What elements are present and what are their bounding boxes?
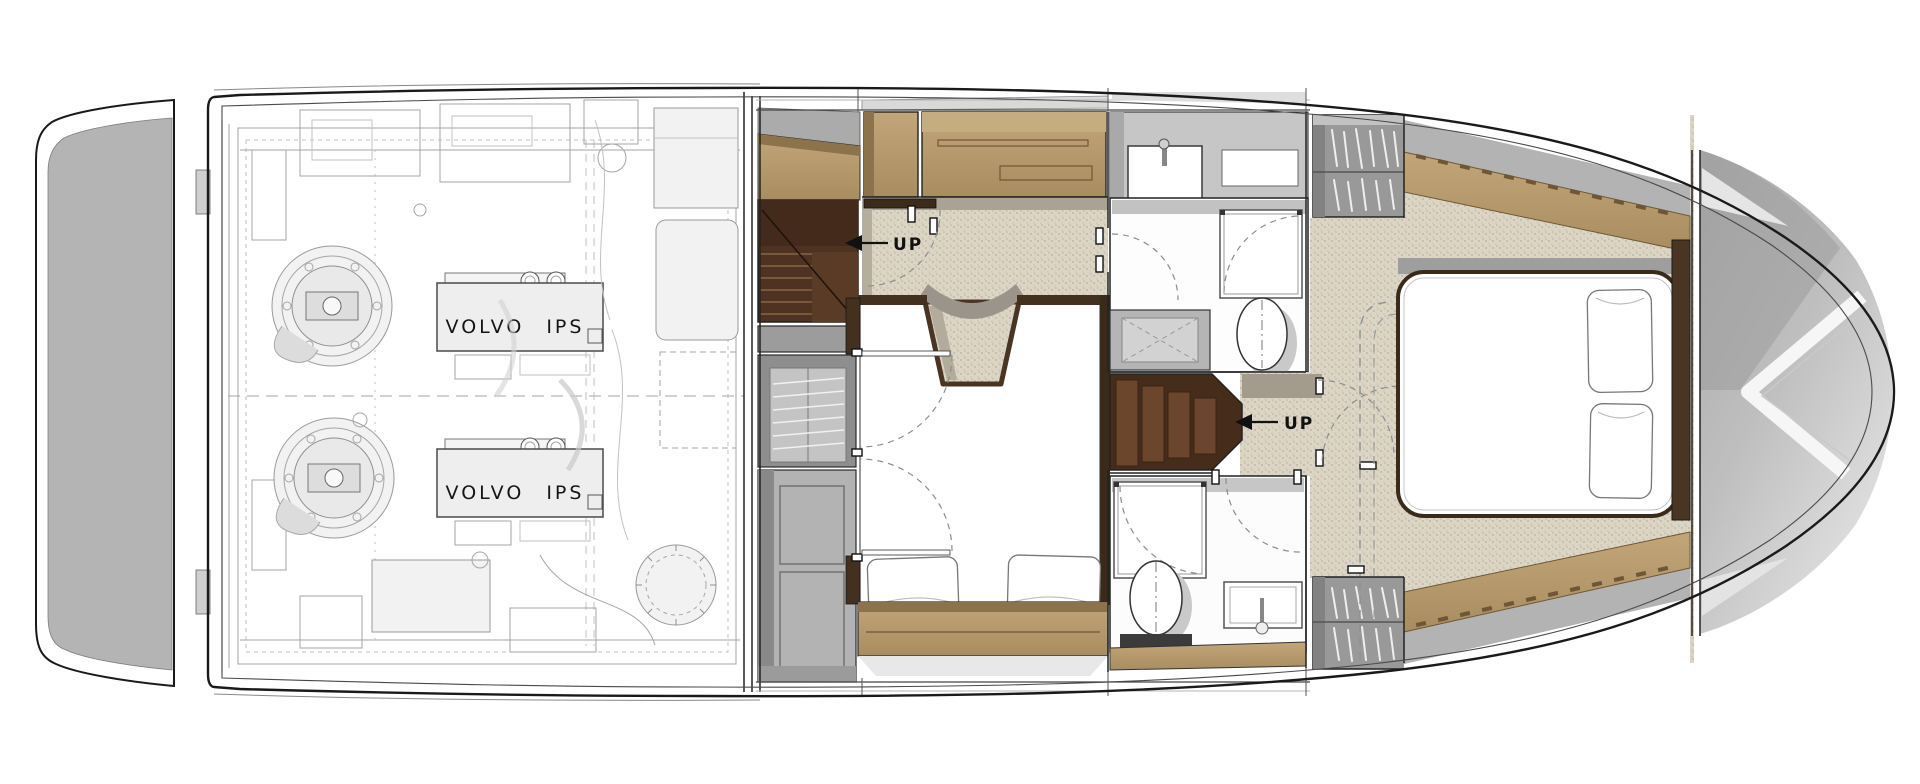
door-jamb [908, 206, 915, 222]
pillow [1589, 403, 1653, 498]
cabin-wall [846, 556, 860, 604]
door-jamb [1294, 470, 1301, 484]
faucet-icon [1260, 598, 1264, 624]
ips-pod-port [272, 246, 392, 366]
lower-bathroom [1110, 470, 1306, 670]
engine-room: VOLVO IPS VOLVO IPS [196, 98, 748, 690]
mid-cabin: UP [845, 96, 1110, 676]
corridor-shadow [1242, 374, 1322, 398]
stair-door-header [864, 199, 936, 208]
door-jamb [1096, 256, 1103, 272]
forward-staircase [1110, 374, 1242, 470]
bed-headboard [1672, 240, 1690, 520]
wardrobe-bottom [1313, 577, 1405, 669]
vanity-hatch [1222, 150, 1298, 186]
shower-icon [1220, 210, 1302, 298]
tall-cabinet [758, 470, 856, 682]
pillow [1587, 289, 1653, 392]
cabin-wall [858, 295, 927, 305]
entry-carpet [1310, 218, 1406, 578]
faucet-icon [1159, 139, 1169, 149]
door-jamb [1212, 470, 1219, 484]
door-jamb [1096, 228, 1103, 244]
floor-shadow [858, 656, 1108, 676]
yacht-lower-deck-floorplan: VOLVO IPS VOLVO IPS [0, 0, 1920, 784]
locker-shelf [758, 326, 856, 352]
door-jamb [930, 218, 937, 234]
shower-tray [1110, 310, 1210, 370]
engine-starboard-label: VOLVO IPS [446, 482, 585, 504]
mid-bathroom [1110, 112, 1308, 380]
ips-pod-starboard [274, 418, 394, 538]
aft-stair-column [752, 96, 860, 692]
bow-area [1692, 150, 1892, 636]
aft-staircase [758, 200, 858, 322]
floorplan-svg: VOLVO IPS VOLVO IPS [0, 0, 1920, 784]
cabin-wall [1017, 295, 1108, 305]
vanity-shadow [1110, 112, 1124, 198]
swim-platform [36, 100, 174, 686]
sink-icon [1224, 582, 1302, 634]
forward-stairs-up-label: UP [1284, 414, 1314, 434]
swim-platform-deck [48, 118, 172, 670]
cabin-wall [846, 298, 860, 354]
wardrobe-top [1313, 115, 1405, 217]
faucet-icon [1256, 622, 1268, 634]
shelved-wardrobe [758, 355, 856, 467]
door-jamb [1348, 566, 1364, 573]
aft-stairs-up-label: UP [893, 235, 923, 255]
bed-base-wood [858, 602, 1108, 656]
